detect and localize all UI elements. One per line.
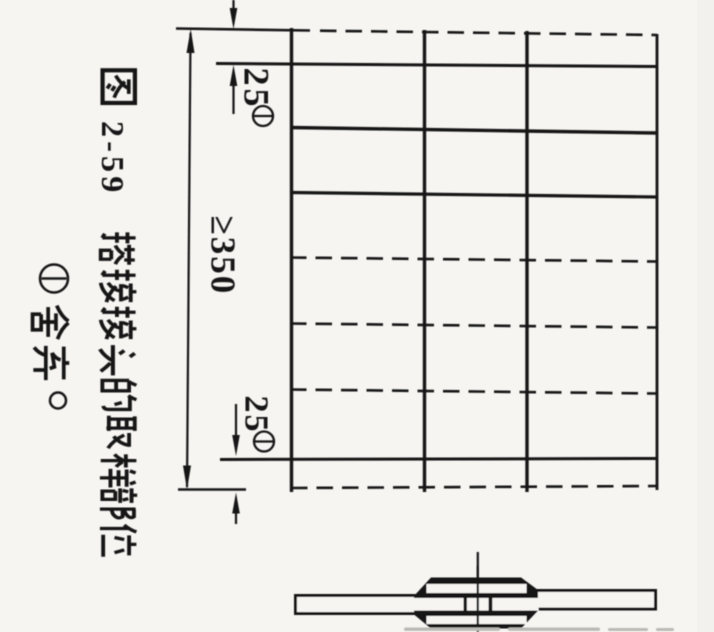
svg-text:2-59: 2-59: [95, 121, 131, 196]
svg-text:≥350: ≥350: [204, 216, 243, 296]
svg-text:25: 25: [237, 68, 277, 110]
svg-text:25: 25: [238, 396, 275, 434]
